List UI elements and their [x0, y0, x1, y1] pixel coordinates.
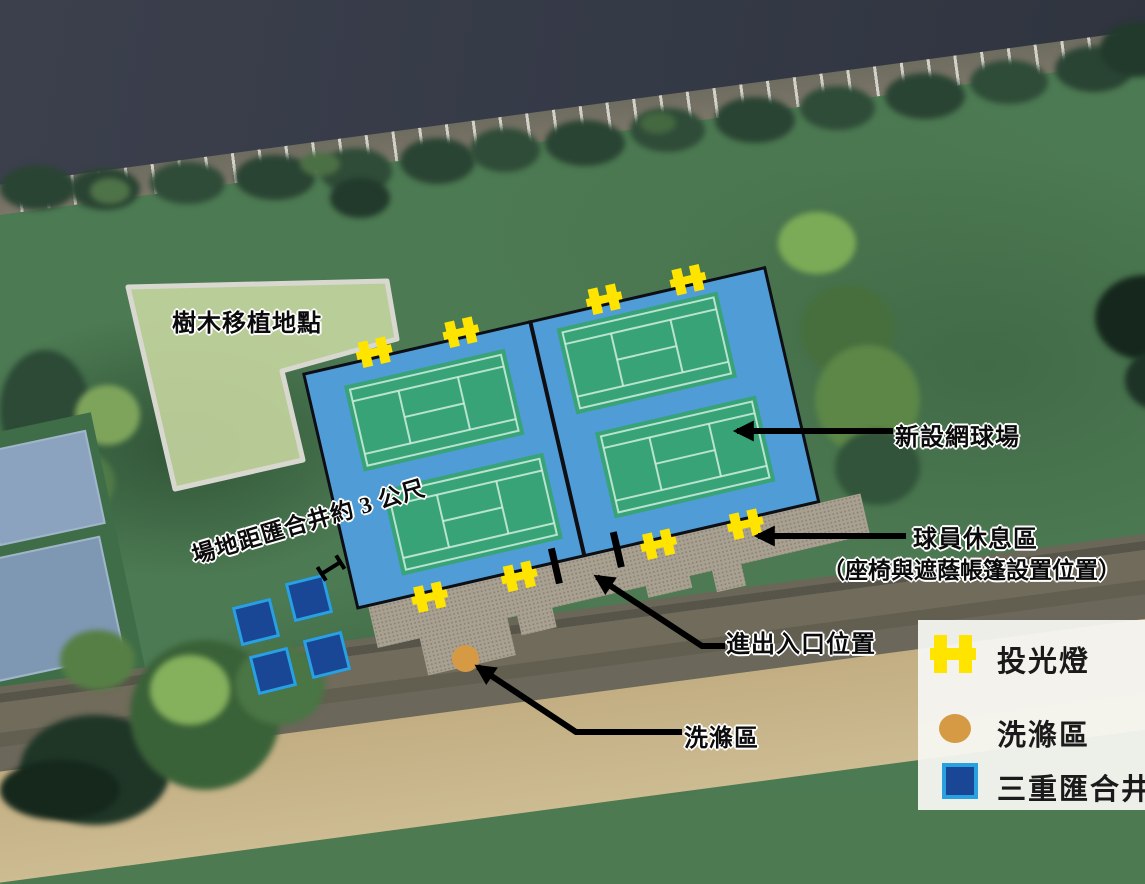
- rest-area-sublabel: （座椅與遮蔭帳篷設置位置）: [822, 551, 1121, 585]
- legend-washing-label: 洗滌區: [997, 712, 1090, 754]
- new-court-label: 新設網球場: [895, 417, 1020, 452]
- entrance-label: 進出入口位置: [726, 624, 876, 659]
- legend: 投光燈 洗滌區 三重匯合井: [918, 620, 1145, 810]
- site-plan-map: { "annotations": { "tree_area": "樹木移植地點"…: [0, 0, 1145, 795]
- washing-area-marker: [452, 645, 479, 672]
- legend-floodlight-label: 投光燈: [997, 638, 1090, 680]
- rest-area-label: 球員休息區: [913, 519, 1038, 554]
- washing-area-legend-icon: [939, 714, 971, 743]
- washing-label: 洗滌區: [684, 718, 759, 753]
- floodlight-legend-icon: [933, 635, 973, 673]
- tree-area-label: 樹木移植地點: [172, 303, 322, 338]
- legend-junction-well-label: 三重匯合井: [997, 766, 1145, 808]
- junction-well-legend-icon: [942, 763, 978, 799]
